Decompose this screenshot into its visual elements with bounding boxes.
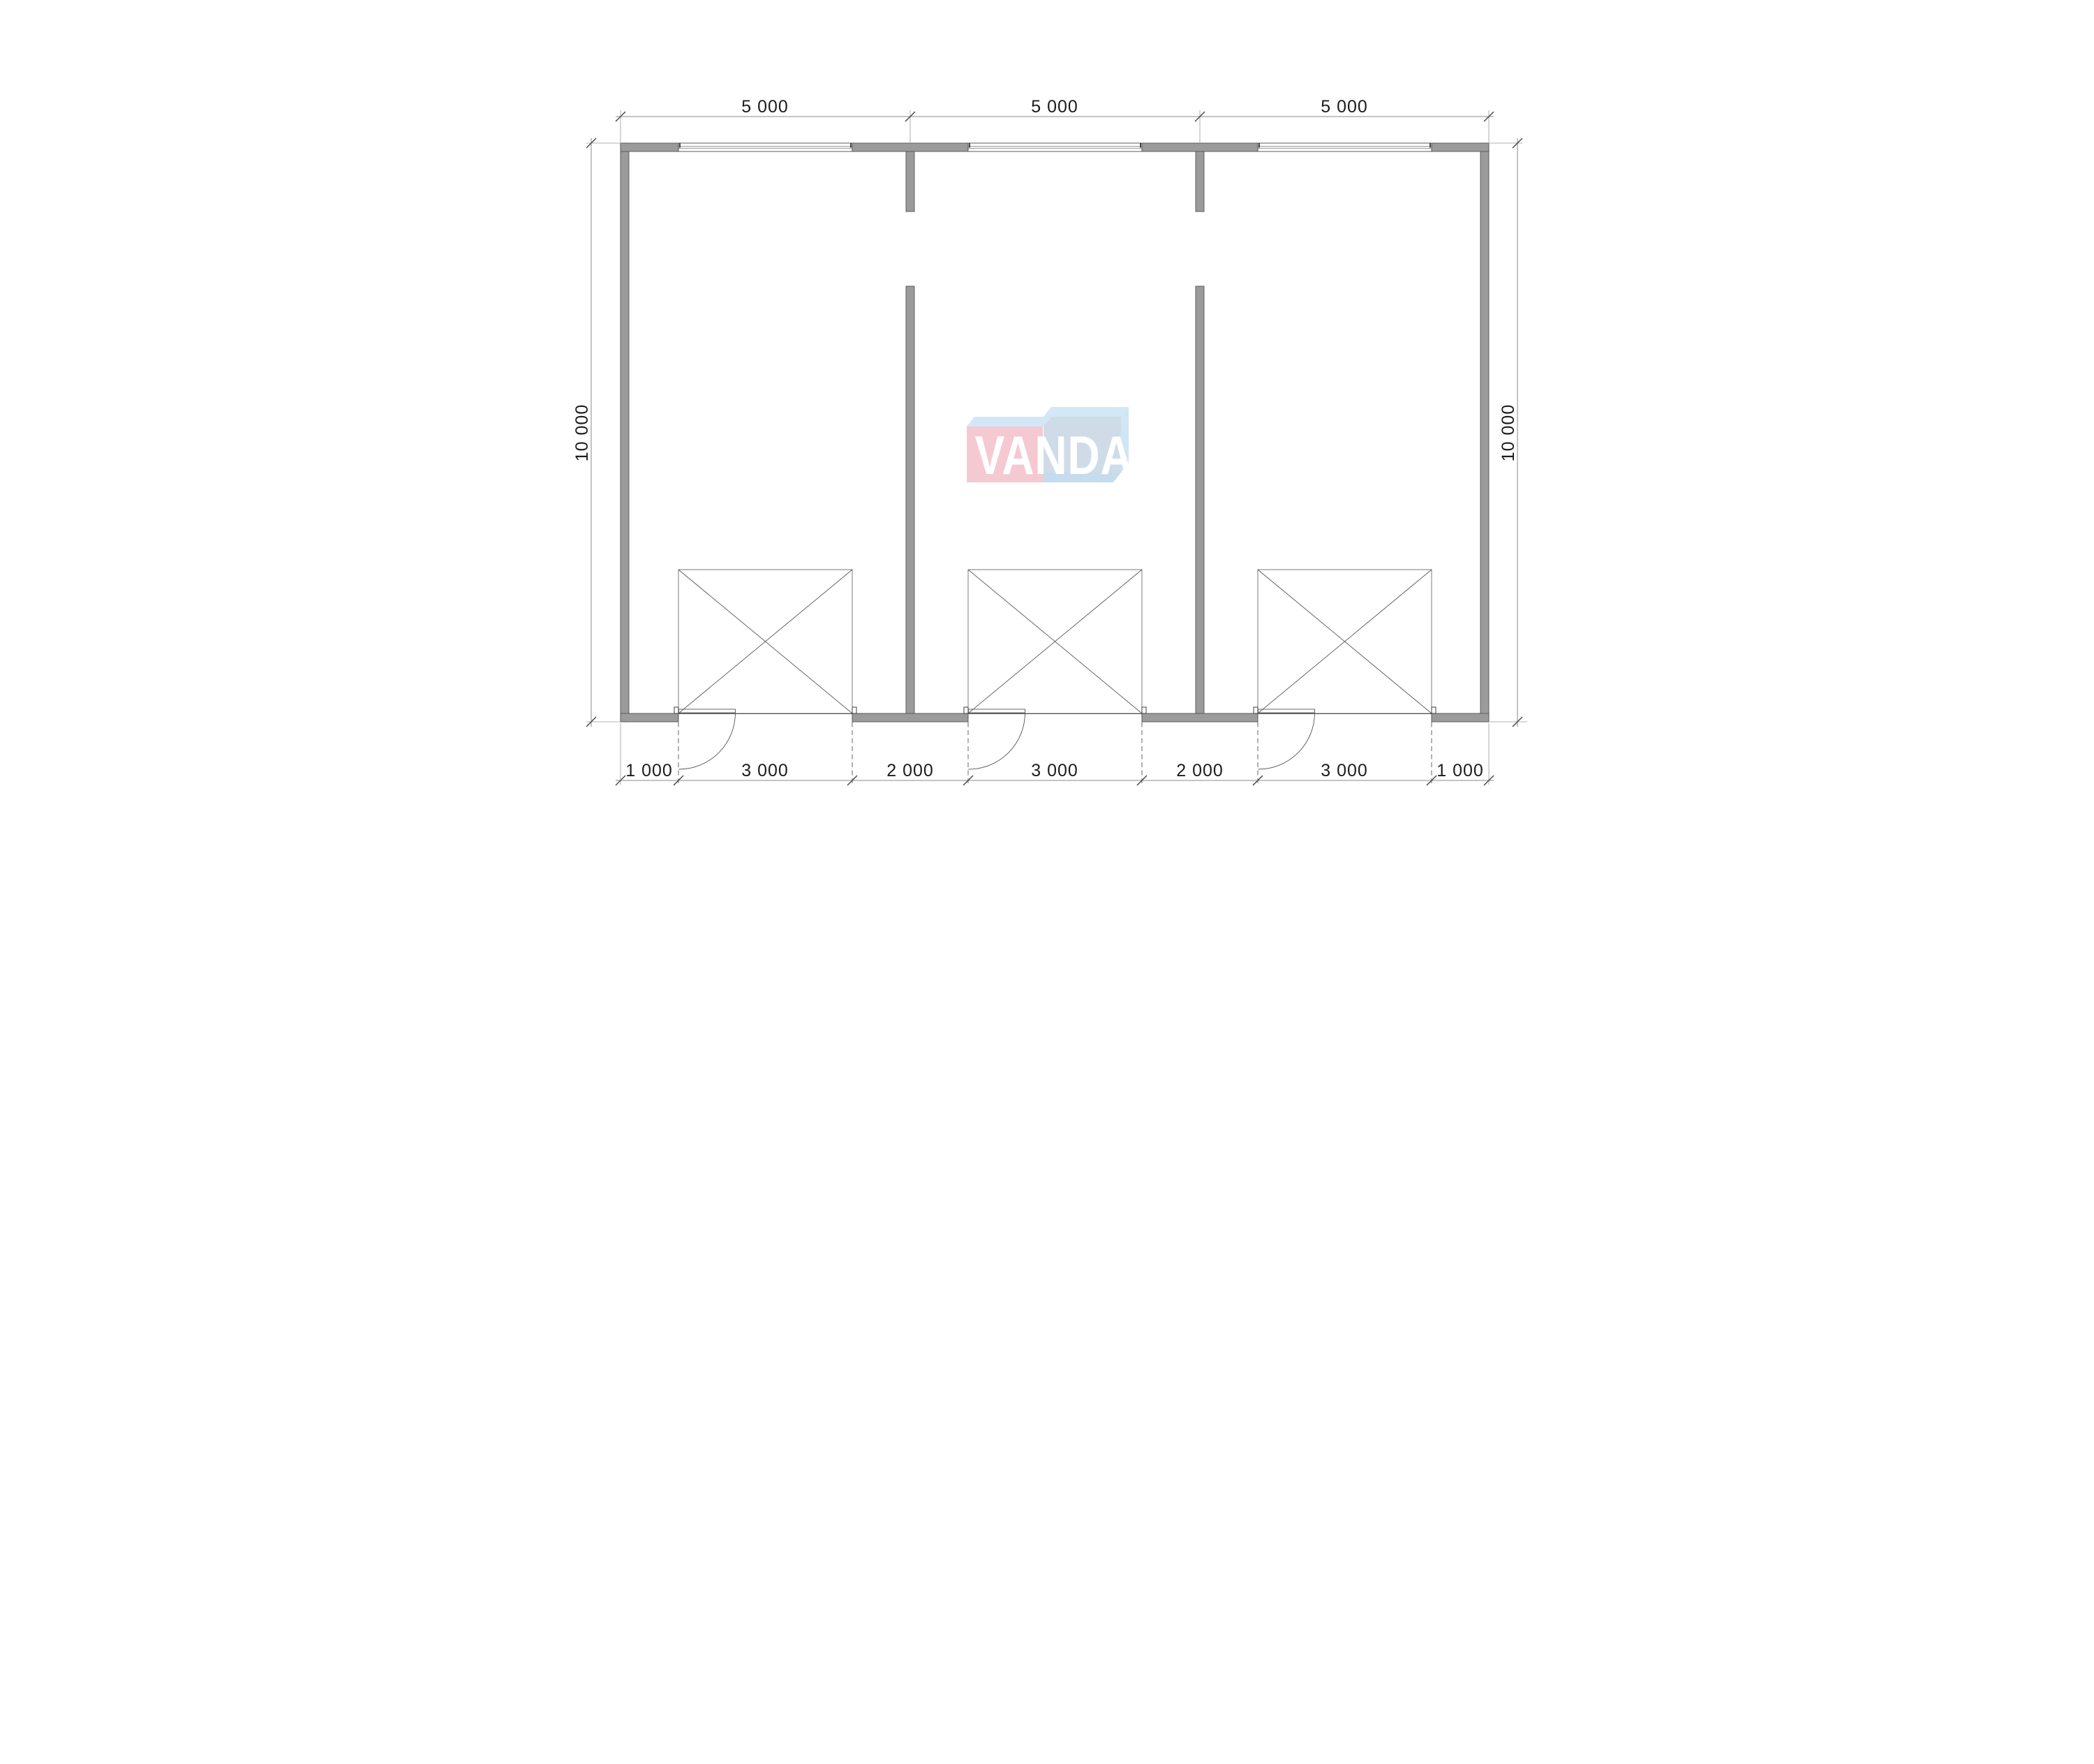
- door-jamb-cap: [674, 707, 678, 713]
- wall-top-segment: [852, 143, 968, 151]
- dimension-chain-bottom: 1 000 3 000 2 000 3 000 2 000 3 000 1 00…: [616, 723, 1494, 785]
- window-opening: [1258, 143, 1432, 151]
- dimension-label-bottom-2: 3 000: [741, 761, 789, 780]
- dimension-label-bottom-6: 3 000: [1321, 761, 1368, 780]
- door-leaf: [969, 709, 1025, 713]
- dimension-left: 10 000: [572, 138, 621, 727]
- door-jamb-cap: [852, 707, 856, 713]
- wall-bottom-segment: [621, 713, 678, 722]
- dimension-label-bottom-3: 2 000: [886, 761, 934, 780]
- partition-1-stub: [906, 151, 914, 212]
- wall-bottom-segment: [852, 713, 968, 722]
- door-jamb-cap: [1142, 707, 1146, 713]
- logo-box-blue-top-face: [1044, 407, 1129, 417]
- partition-2-main: [1196, 286, 1204, 713]
- wall-right: [1480, 143, 1489, 722]
- wall-bottom-segment: [1142, 713, 1258, 722]
- garage-door-area-3: [1258, 570, 1432, 713]
- floor-plan-drawing: VANDA: [523, 0, 1570, 882]
- door-leaf: [679, 709, 736, 713]
- window-bay-1: [678, 143, 852, 151]
- dimension-chain-top: 5 000 5 000 5 000: [616, 97, 1494, 142]
- vanda-watermark-logo: VANDA: [967, 407, 1133, 486]
- door-jamb-cap: [1432, 707, 1436, 713]
- wall-top-segment: [1142, 143, 1258, 151]
- wall-top-segment: [1432, 143, 1489, 151]
- partition-1-main: [906, 286, 914, 713]
- partition-2-stub: [1196, 151, 1204, 212]
- window-opening: [968, 143, 1142, 151]
- dimension-label-right: 10 000: [1499, 404, 1518, 461]
- dimension-label-bottom-4: 3 000: [1031, 761, 1078, 780]
- door-jamb-cap: [1254, 707, 1258, 713]
- logo-text: VANDA: [975, 425, 1134, 486]
- door-leaf: [1258, 709, 1315, 713]
- window-bay-3: [1258, 143, 1432, 151]
- floor-plan-page: VANDA: [523, 0, 1570, 882]
- dimension-label-top-1: 5 000: [741, 97, 789, 117]
- dimension-label-top-2: 5 000: [1031, 97, 1078, 117]
- windows: [678, 143, 1432, 151]
- dimension-label-bottom-5: 2 000: [1176, 761, 1224, 780]
- dimension-label-bottom-7: 1 000: [1436, 761, 1484, 780]
- wall-top-segment: [621, 143, 678, 151]
- window-opening: [678, 143, 852, 151]
- wall-left: [621, 143, 629, 722]
- door-swing-arc: [679, 713, 736, 769]
- dimension-label-bottom-1: 1 000: [625, 761, 673, 780]
- door-jamb-cap: [964, 707, 968, 713]
- window-bay-2: [968, 143, 1142, 151]
- dimension-label-top-3: 5 000: [1321, 97, 1368, 117]
- dimension-right: 10 000: [1489, 138, 1527, 727]
- dimension-label-left: 10 000: [572, 404, 592, 461]
- garage-door-area-2: [968, 570, 1142, 713]
- garage-door-area-1: [678, 570, 852, 713]
- wall-bottom-segment: [1432, 713, 1489, 722]
- door-swing-arc: [969, 713, 1025, 769]
- garage-door-areas: [678, 570, 1432, 713]
- door-swing-arc: [1258, 713, 1315, 769]
